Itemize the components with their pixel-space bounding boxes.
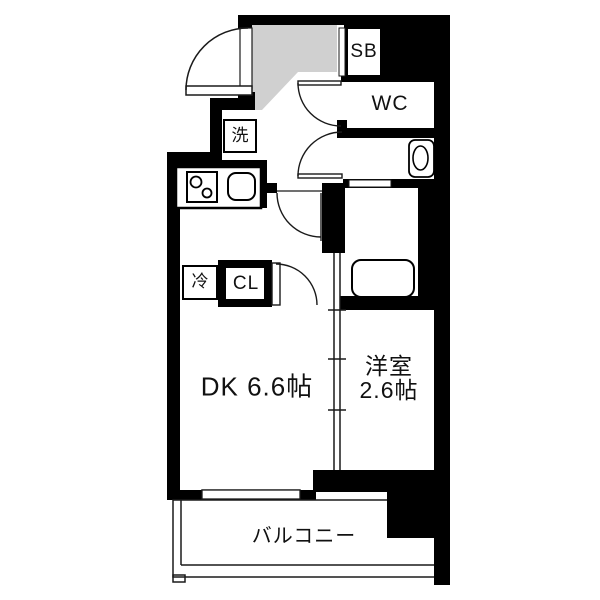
dk-room-label: DK 6.6帖 bbox=[201, 373, 314, 400]
wall-balcony-step-2 bbox=[387, 492, 434, 538]
window-to-balcony-2 bbox=[202, 490, 300, 499]
sliding-partition bbox=[328, 253, 346, 470]
sink-icon bbox=[228, 173, 255, 200]
refrigerator-label: 冷 bbox=[192, 273, 209, 291]
wall-laundry-left bbox=[210, 108, 222, 158]
entrance-door-arc bbox=[186, 28, 248, 90]
wall-entrance-left-top bbox=[238, 17, 252, 29]
wc-label: WC bbox=[372, 93, 409, 115]
western-room-label: 洋室 2.6帖 bbox=[360, 354, 419, 402]
genkan-area bbox=[252, 25, 337, 110]
washroom-door-leaf bbox=[298, 174, 342, 178]
wall-right-column-2 bbox=[434, 420, 450, 585]
wall-bath-right bbox=[418, 188, 450, 305]
wall-thin-strip-sb bbox=[339, 28, 345, 76]
wc-door-leaf bbox=[298, 81, 341, 85]
wall-top bbox=[238, 15, 450, 25]
western-room-name: 洋室 bbox=[360, 354, 419, 378]
closet-door-leaf bbox=[272, 263, 280, 305]
floor-plan-drawing bbox=[0, 0, 600, 600]
bathtub-icon bbox=[352, 260, 414, 297]
wall-hall-stub bbox=[266, 183, 277, 193]
closet-door-arc bbox=[276, 264, 317, 305]
wall-hall-dk-column bbox=[322, 183, 345, 253]
washroom-door-arc bbox=[298, 132, 342, 176]
kitchen-unit bbox=[176, 167, 261, 208]
western-room-size: 2.6帖 bbox=[360, 378, 419, 402]
laundry-label: 洗 bbox=[232, 127, 249, 145]
entrance-door-leaf bbox=[186, 86, 252, 95]
wall-hall-wc-mid bbox=[337, 120, 347, 138]
wall-bath-bottom bbox=[340, 296, 450, 310]
wall-western-bottom-2 bbox=[313, 470, 434, 492]
wall-dk-bottom-left bbox=[167, 490, 202, 500]
dk-door-arc bbox=[277, 193, 321, 237]
wc-door-arc bbox=[298, 83, 341, 126]
floor-plan: SB WC 洗 冷 CL DK 6.6帖 洋室 2.6帖 バルコニー bbox=[0, 0, 600, 600]
stove-icon bbox=[187, 172, 217, 202]
closet-label: CL bbox=[233, 274, 259, 294]
shoe-box-label: SB bbox=[350, 42, 377, 62]
balcony-label: バルコニー bbox=[252, 527, 357, 548]
wall-wc-bottom bbox=[341, 128, 450, 138]
entrance-door-opening bbox=[240, 28, 252, 88]
bath-sliding-door bbox=[349, 180, 391, 187]
